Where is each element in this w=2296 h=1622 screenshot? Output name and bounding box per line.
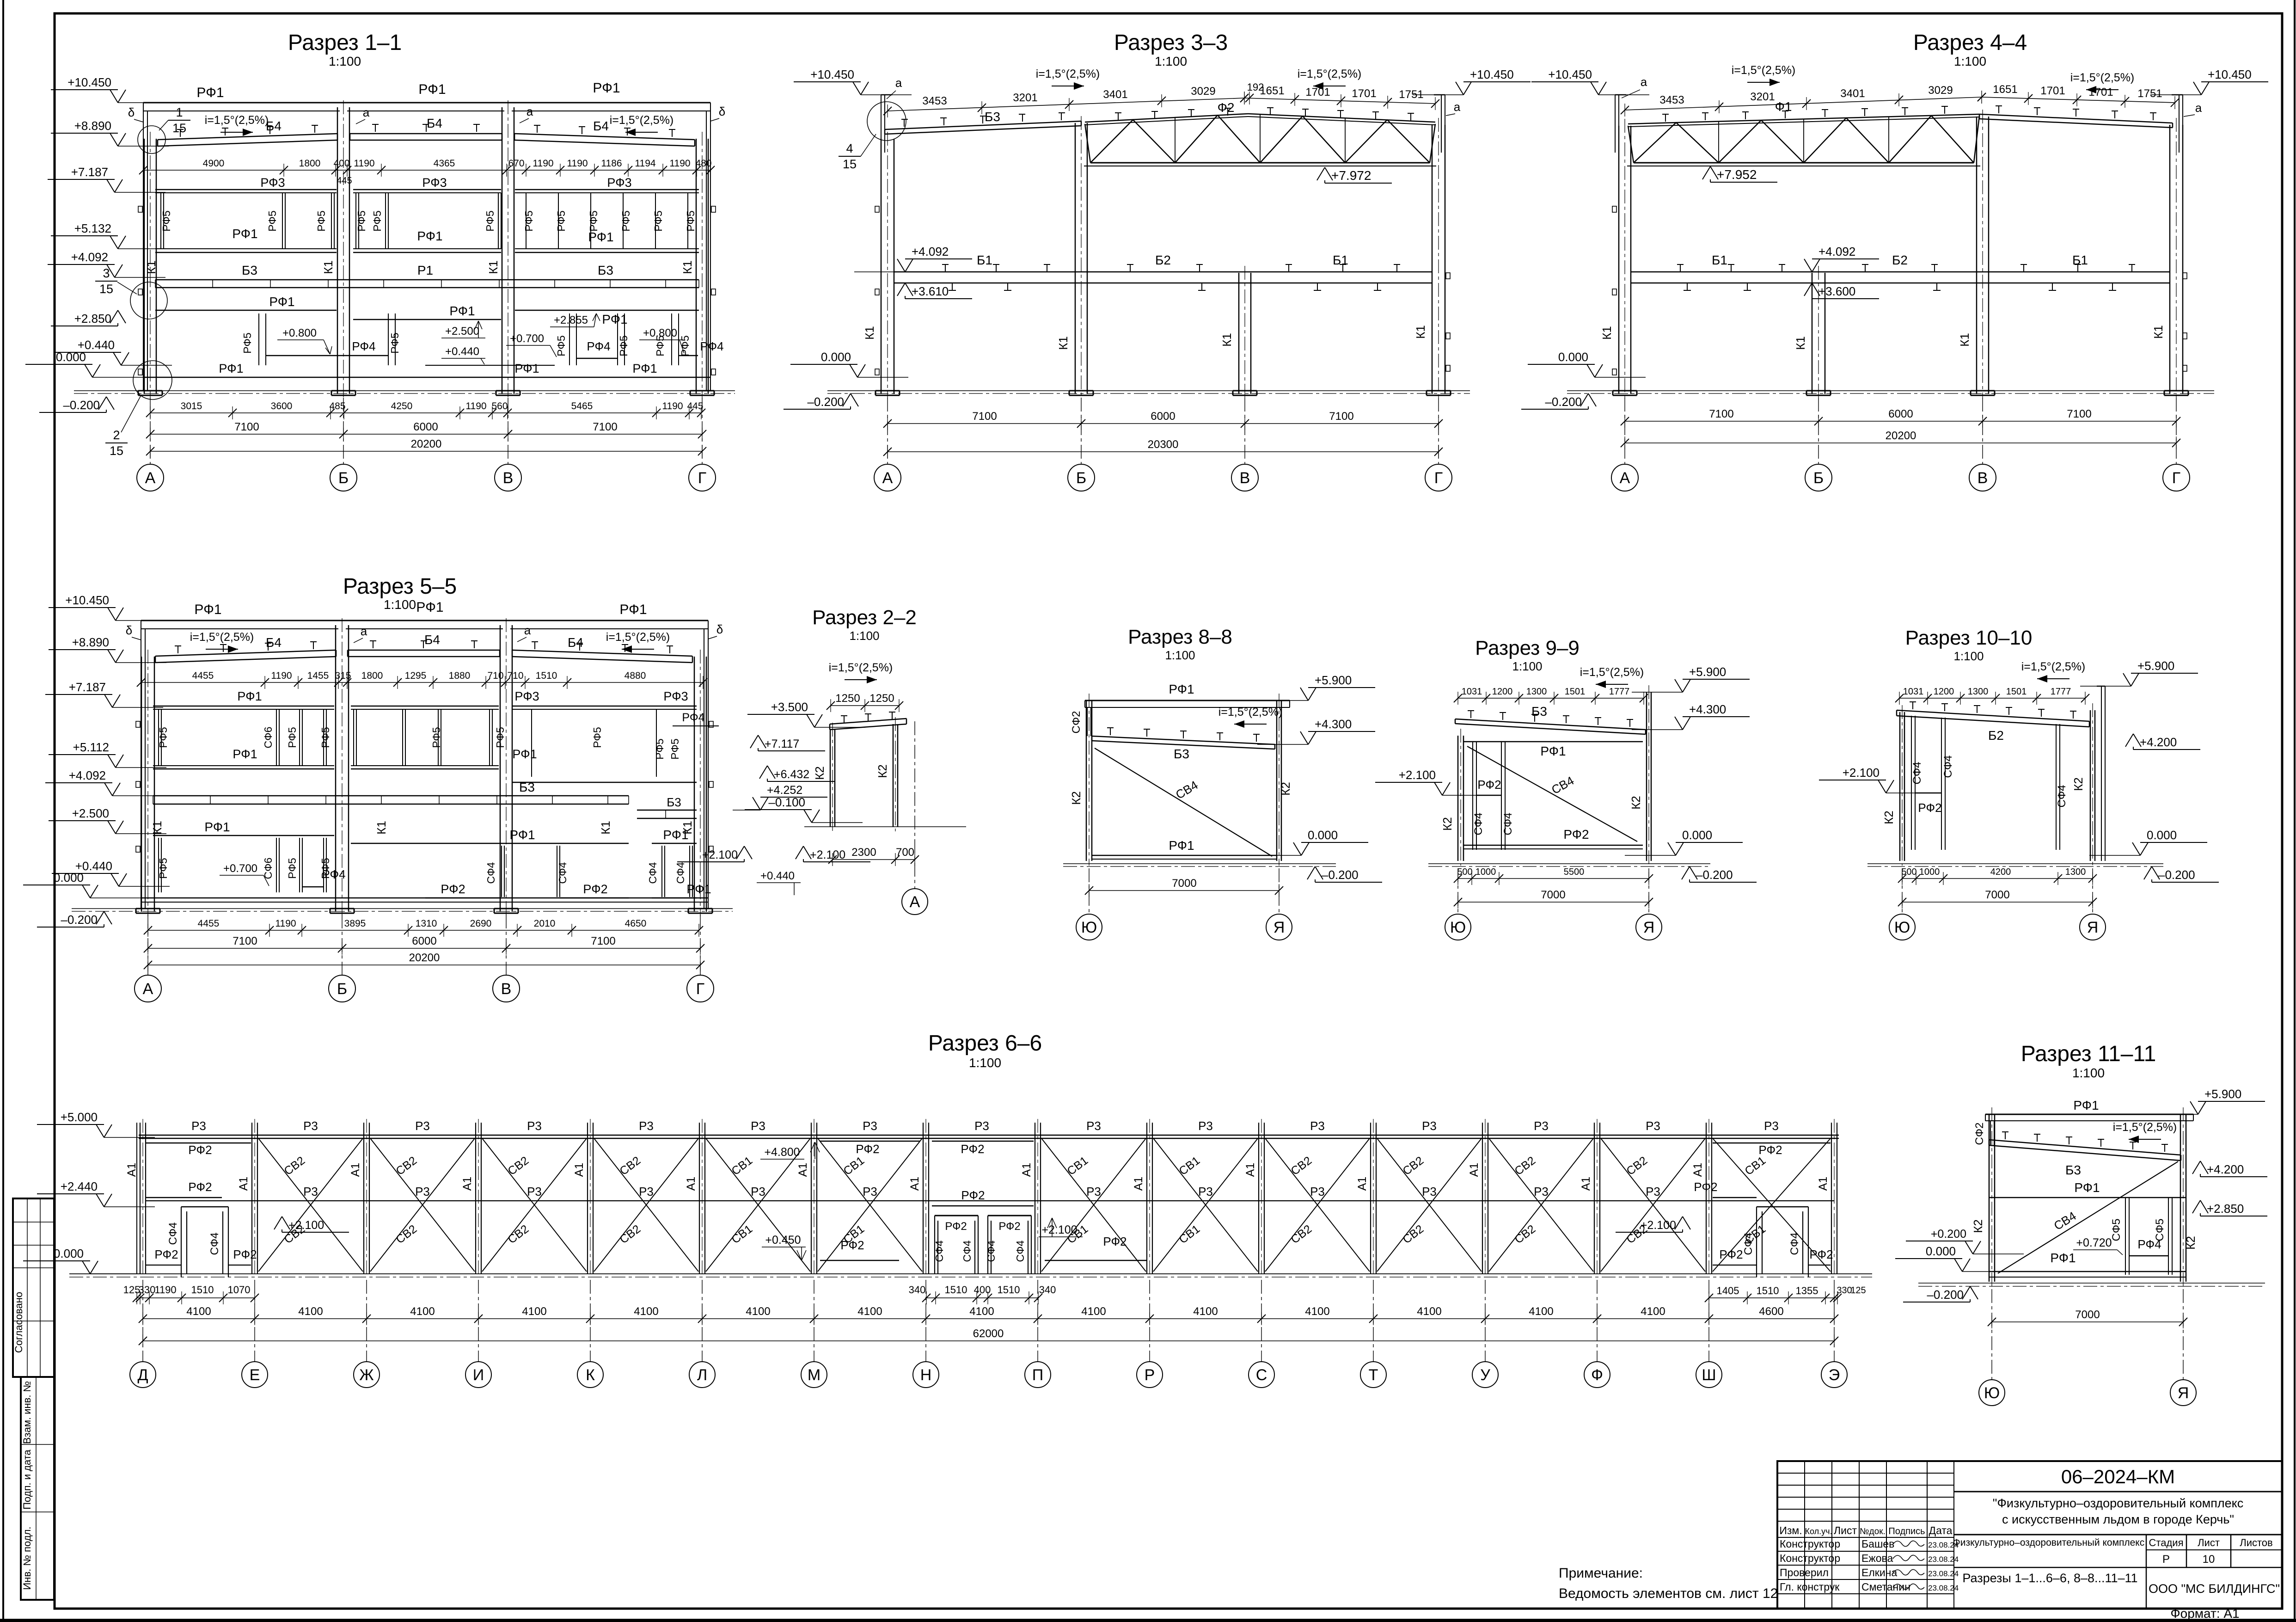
- svg-text:+2.100: +2.100: [288, 1219, 324, 1232]
- svg-text:РФ2: РФ2: [1477, 778, 1501, 792]
- svg-text:+4.252: +4.252: [767, 784, 802, 797]
- svg-text:А1: А1: [685, 1177, 698, 1191]
- svg-text:К1: К1: [1056, 336, 1070, 350]
- svg-text:А1: А1: [349, 1163, 362, 1177]
- svg-text:3201: 3201: [1750, 91, 1775, 103]
- svg-text:Р3: Р3: [191, 1119, 206, 1133]
- svg-text:–0.200: –0.200: [807, 395, 844, 409]
- svg-text:РФ5: РФ5: [286, 858, 298, 879]
- svg-text:125: 125: [123, 1284, 141, 1296]
- svg-text:Физкультурно–оздоровительный к: Физкультурно–оздоровительный комплекс: [1953, 1537, 2144, 1548]
- svg-text:4100: 4100: [746, 1305, 770, 1318]
- svg-text:Разрез 5–5: Разрез 5–5: [343, 574, 457, 599]
- svg-text:а: а: [895, 76, 902, 90]
- svg-text:3600: 3600: [271, 401, 293, 412]
- svg-text:У: У: [1480, 1366, 1490, 1384]
- svg-text:РФ4: РФ4: [352, 339, 375, 353]
- svg-text:а: а: [361, 624, 367, 638]
- svg-text:РФ1: РФ1: [233, 747, 257, 761]
- svg-text:+2.500: +2.500: [445, 325, 479, 338]
- svg-text:РФ5: РФ5: [371, 210, 383, 231]
- svg-text:Р: Р: [1145, 1366, 1155, 1384]
- svg-text:i=1,5°(2,5%): i=1,5°(2,5%): [1218, 706, 1283, 719]
- svg-text:1:100: 1:100: [1155, 54, 1187, 68]
- svg-text:СФ2: СФ2: [1070, 711, 1083, 734]
- svg-text:Б: Б: [338, 469, 349, 487]
- svg-text:6000: 6000: [413, 421, 438, 433]
- svg-text:1:100: 1:100: [1953, 649, 1984, 663]
- svg-text:Сметанин: Сметанин: [1861, 1581, 1910, 1593]
- svg-text:2690: 2690: [470, 918, 492, 929]
- svg-text:РФ5: РФ5: [679, 335, 691, 356]
- svg-text:1300: 1300: [2065, 867, 2086, 877]
- svg-text:Р3: Р3: [639, 1185, 654, 1198]
- svg-text:РФ2: РФ2: [856, 1142, 879, 1156]
- svg-text:РФ4: РФ4: [700, 339, 723, 353]
- svg-text:485: 485: [329, 401, 345, 412]
- svg-text:К1: К1: [1794, 336, 1807, 350]
- svg-text:РФ1: РФ1: [237, 689, 262, 703]
- svg-text:К1: К1: [2151, 325, 2165, 339]
- svg-text:А: А: [145, 469, 156, 487]
- svg-text:23.08.24: 23.08.24: [1928, 1584, 1959, 1592]
- svg-text:–0.200: –0.200: [1927, 1288, 1964, 1302]
- svg-text:4200: 4200: [1990, 867, 2011, 877]
- svg-text:Б4: Б4: [266, 635, 282, 650]
- svg-text:4100: 4100: [634, 1305, 658, 1318]
- svg-text:1200: 1200: [1492, 687, 1513, 697]
- svg-text:+2.100: +2.100: [702, 848, 738, 861]
- svg-text:330: 330: [139, 1284, 156, 1296]
- svg-text:+0.700: +0.700: [223, 862, 257, 875]
- svg-text:СФ4: СФ4: [485, 862, 497, 884]
- svg-text:В: В: [503, 469, 514, 487]
- svg-text:330: 330: [1837, 1285, 1852, 1296]
- svg-text:К1: К1: [1414, 325, 1427, 339]
- svg-text:Ф1: Ф1: [1775, 99, 1792, 114]
- svg-text:1800: 1800: [361, 670, 383, 681]
- svg-text:4100: 4100: [1529, 1305, 1553, 1318]
- svg-text:А1: А1: [125, 1163, 138, 1177]
- svg-text:1751: 1751: [2137, 87, 2162, 100]
- svg-text:К: К: [586, 1366, 595, 1384]
- svg-text:i=1,5°(2,5%): i=1,5°(2,5%): [190, 631, 254, 644]
- svg-text:Б4: Б4: [266, 119, 282, 133]
- svg-text:6000: 6000: [1888, 408, 1913, 420]
- svg-text:i=1,5°(2,5%): i=1,5°(2,5%): [610, 114, 674, 127]
- svg-text:+4.092: +4.092: [1818, 245, 1855, 258]
- svg-text:СФ4: СФ4: [933, 1240, 945, 1262]
- svg-text:РФ2: РФ2: [1918, 801, 1941, 815]
- svg-text:РФ1: РФ1: [1169, 682, 1194, 696]
- svg-text:Р3: Р3: [1422, 1185, 1437, 1198]
- svg-text:23.08.24: 23.08.24: [1928, 1555, 1959, 1564]
- svg-text:3401: 3401: [1840, 87, 1865, 100]
- svg-text:3895: 3895: [344, 918, 366, 929]
- svg-text:Д: Д: [137, 1366, 148, 1384]
- svg-text:1651: 1651: [1993, 83, 2017, 96]
- svg-text:РФ5: РФ5: [157, 727, 169, 748]
- svg-text:К2: К2: [813, 766, 827, 780]
- svg-text:РФ5: РФ5: [620, 210, 632, 231]
- svg-text:Б3: Б3: [1174, 747, 1189, 761]
- svg-text:РФ1: РФ1: [219, 362, 243, 375]
- svg-text:РФ2: РФ2: [583, 882, 607, 896]
- svg-text:К1: К1: [680, 260, 694, 274]
- svg-text:0.000: 0.000: [821, 350, 851, 364]
- svg-text:А: А: [143, 980, 153, 998]
- svg-text:Разрез 9–9: Разрез 9–9: [1475, 637, 1580, 659]
- svg-text:Б3: Б3: [242, 263, 257, 277]
- svg-text:1405: 1405: [1717, 1285, 1739, 1296]
- svg-text:i=1,5°(2,5%): i=1,5°(2,5%): [606, 631, 670, 644]
- svg-text:+5.132: +5.132: [74, 221, 111, 235]
- svg-text:15: 15: [99, 282, 113, 296]
- svg-text:РФ5: РФ5: [241, 332, 253, 353]
- svg-text:+3.610: +3.610: [912, 284, 949, 298]
- svg-text:Ф2: Ф2: [1218, 100, 1235, 115]
- svg-text:Р1: Р1: [417, 263, 433, 277]
- svg-text:Стадия: Стадия: [2149, 1537, 2184, 1548]
- svg-text:Р3: Р3: [303, 1119, 318, 1133]
- svg-text:СФ6: СФ6: [262, 727, 274, 749]
- svg-text:СФ4: СФ4: [167, 1223, 179, 1245]
- svg-text:06–2024–КМ: 06–2024–КМ: [2061, 1466, 2175, 1487]
- svg-text:СФ4: СФ4: [1014, 1240, 1026, 1262]
- svg-text:7000: 7000: [1985, 889, 2009, 901]
- svg-text:+10.450: +10.450: [810, 68, 854, 81]
- svg-text:Р3: Р3: [751, 1119, 765, 1133]
- svg-text:+4.092: +4.092: [912, 245, 949, 258]
- svg-text:1510: 1510: [536, 670, 557, 681]
- svg-text:РФ2: РФ2: [154, 1247, 178, 1261]
- svg-text:Б2: Б2: [1155, 253, 1171, 267]
- svg-text:Разрез 8–8: Разрез 8–8: [1128, 626, 1232, 648]
- svg-text:К2: К2: [1069, 791, 1083, 805]
- svg-text:СФ4: СФ4: [2056, 785, 2068, 808]
- svg-text:РФ3: РФ3: [260, 176, 285, 190]
- svg-text:15: 15: [843, 157, 857, 171]
- svg-text:РФ1: РФ1: [2074, 1180, 2100, 1195]
- svg-text:Р3: Р3: [1086, 1185, 1101, 1198]
- svg-text:Р3: Р3: [639, 1119, 654, 1133]
- svg-text:К1: К1: [599, 821, 612, 835]
- svg-text:А1: А1: [908, 1177, 921, 1191]
- svg-text:7000: 7000: [2075, 1309, 2100, 1321]
- svg-text:+7.972: +7.972: [1331, 168, 1371, 183]
- svg-text:Э: Э: [1829, 1366, 1840, 1384]
- svg-text:Ю: Ю: [1450, 919, 1466, 936]
- svg-text:1190: 1190: [669, 158, 690, 169]
- svg-text:1194: 1194: [635, 158, 655, 169]
- svg-text:+4.200: +4.200: [2140, 735, 2177, 749]
- svg-text:+10.450: +10.450: [67, 75, 111, 89]
- svg-text:–0.200: –0.200: [63, 398, 100, 412]
- svg-text:+0.720: +0.720: [2076, 1236, 2112, 1249]
- svg-text:2010: 2010: [534, 918, 556, 929]
- svg-text:4100: 4100: [1305, 1305, 1329, 1318]
- svg-text:РФ5: РФ5: [430, 727, 442, 748]
- svg-text:1501: 1501: [2006, 687, 2027, 697]
- svg-text:Г: Г: [2172, 469, 2180, 487]
- svg-text:+3.600: +3.600: [1818, 284, 1855, 298]
- svg-text:i=1,5°(2,5%): i=1,5°(2,5%): [829, 661, 893, 674]
- svg-text:"Физкультурно–оздоровительный: "Физкультурно–оздоровительный комплекс: [1993, 1496, 2243, 1510]
- svg-text:+5.000: +5.000: [61, 1110, 98, 1124]
- svg-text:РФ2: РФ2: [1694, 1180, 1717, 1194]
- svg-text:710: 710: [487, 670, 503, 681]
- svg-text:Б4: Б4: [568, 635, 583, 650]
- svg-text:№док.: №док.: [1860, 1527, 1886, 1536]
- svg-text:Ведомость элементов см. лист 1: Ведомость элементов см. лист 12: [1559, 1586, 1778, 1601]
- svg-text:4100: 4100: [186, 1305, 211, 1318]
- svg-text:–0.200: –0.200: [1322, 868, 1359, 882]
- svg-text:РФ2: РФ2: [188, 1180, 212, 1194]
- svg-text:20300: 20300: [1148, 438, 1179, 451]
- svg-text:Взам. инв. №: Взам. инв. №: [21, 1381, 33, 1444]
- svg-text:К1: К1: [1958, 333, 1971, 347]
- svg-text:2300: 2300: [851, 846, 876, 859]
- svg-text:1777: 1777: [1609, 687, 1630, 697]
- svg-text:РФ5: РФ5: [266, 210, 278, 231]
- svg-text:Ю: Ю: [1894, 919, 1910, 936]
- svg-text:Р3: Р3: [1646, 1185, 1660, 1198]
- svg-text:К1: К1: [486, 260, 500, 274]
- svg-text:1190: 1190: [275, 918, 296, 929]
- svg-text:К1: К1: [321, 260, 335, 274]
- svg-text:РФ2: РФ2: [1719, 1247, 1743, 1261]
- svg-text:1701: 1701: [2040, 85, 2065, 97]
- svg-text:РФ1: РФ1: [512, 747, 537, 761]
- svg-text:1310: 1310: [416, 918, 437, 929]
- svg-text:РФ5: РФ5: [286, 727, 298, 748]
- svg-text:4100: 4100: [857, 1305, 882, 1318]
- svg-text:4650: 4650: [625, 918, 647, 929]
- svg-text:i=1,5°(2,5%): i=1,5°(2,5%): [205, 114, 269, 127]
- svg-text:Б4: Б4: [593, 119, 609, 133]
- svg-text:1:100: 1:100: [1954, 54, 1986, 68]
- svg-text:Я: Я: [2087, 919, 2099, 936]
- svg-text:4100: 4100: [1417, 1305, 1441, 1318]
- svg-text:Р3: Р3: [303, 1185, 318, 1198]
- svg-text:7100: 7100: [591, 935, 615, 947]
- svg-text:445: 445: [687, 401, 703, 412]
- svg-text:20200: 20200: [411, 438, 442, 450]
- svg-text:РФ1: РФ1: [416, 600, 443, 615]
- svg-text:+5.900: +5.900: [2137, 659, 2174, 673]
- svg-text:СФ4: СФ4: [647, 862, 659, 884]
- svg-text:+5.900: +5.900: [2204, 1087, 2241, 1101]
- svg-text:δ: δ: [719, 104, 725, 118]
- svg-text:Р3: Р3: [1764, 1119, 1779, 1133]
- svg-text:Н: Н: [920, 1366, 932, 1384]
- svg-text:РФ1: РФ1: [619, 602, 647, 617]
- svg-text:Г: Г: [698, 469, 706, 487]
- svg-text:РФ2: РФ2: [961, 1142, 984, 1156]
- svg-text:А1: А1: [461, 1177, 474, 1191]
- svg-text:+4.300: +4.300: [1315, 717, 1352, 731]
- svg-text:с искусственным льдом в городе: с искусственным льдом в городе Керчь": [2002, 1512, 2234, 1526]
- svg-text:–0.100: –0.100: [768, 795, 805, 809]
- svg-text:1800: 1800: [299, 158, 321, 169]
- svg-text:1250: 1250: [869, 692, 894, 705]
- svg-text:Р3: Р3: [751, 1185, 765, 1198]
- svg-text:РФ2: РФ2: [998, 1220, 1020, 1233]
- svg-text:1:100: 1:100: [1512, 659, 1542, 673]
- svg-text:15: 15: [172, 121, 186, 135]
- svg-text:125: 125: [1850, 1285, 1866, 1296]
- svg-text:+7.187: +7.187: [71, 165, 108, 179]
- svg-text:+0.700: +0.700: [510, 332, 544, 345]
- svg-text:i=1,5°(2,5%): i=1,5°(2,5%): [1580, 666, 1644, 679]
- svg-text:Разрез 6–6: Разрез 6–6: [928, 1031, 1042, 1056]
- svg-text:Р3: Р3: [1646, 1119, 1660, 1133]
- svg-text:7100: 7100: [233, 935, 257, 947]
- svg-text:1190: 1190: [154, 1284, 176, 1296]
- svg-text:Ю: Ю: [1081, 919, 1097, 936]
- svg-text:а: а: [1454, 100, 1461, 114]
- svg-text:+8.890: +8.890: [74, 119, 111, 133]
- svg-text:К2: К2: [2184, 1236, 2198, 1250]
- svg-text:+0.800: +0.800: [282, 327, 317, 339]
- svg-text:а: а: [524, 623, 531, 637]
- svg-text:+10.450: +10.450: [65, 593, 109, 607]
- svg-text:К2: К2: [1882, 811, 1896, 824]
- svg-text:+4.092: +4.092: [69, 768, 106, 782]
- svg-text:–0.200: –0.200: [61, 913, 98, 927]
- svg-text:А1: А1: [1817, 1177, 1830, 1191]
- svg-text:Р3: Р3: [415, 1119, 430, 1133]
- svg-text:+4.800: +4.800: [764, 1146, 800, 1159]
- svg-text:Б2: Б2: [1892, 253, 1908, 267]
- svg-text:а: а: [1641, 75, 1647, 89]
- svg-text:Г: Г: [1434, 469, 1443, 487]
- svg-text:А1: А1: [1356, 1177, 1369, 1191]
- svg-text:480: 480: [695, 158, 711, 169]
- svg-text:Листов: Листов: [2240, 1537, 2272, 1548]
- svg-text:РФ2: РФ2: [840, 1238, 864, 1252]
- svg-text:+7.952: +7.952: [1717, 167, 1757, 182]
- svg-text:РФ1: РФ1: [449, 304, 475, 318]
- svg-text:А1: А1: [1244, 1163, 1257, 1177]
- svg-text:Р3: Р3: [415, 1185, 430, 1198]
- svg-text:+0.440: +0.440: [760, 870, 795, 882]
- svg-text:6000: 6000: [412, 935, 436, 947]
- svg-text:1501: 1501: [1565, 687, 1586, 697]
- svg-text:7100: 7100: [972, 410, 997, 423]
- svg-text:1701: 1701: [1352, 87, 1376, 100]
- svg-text:К1: К1: [1600, 326, 1614, 340]
- svg-text:А: А: [910, 893, 920, 911]
- svg-text:РФ5: РФ5: [157, 858, 169, 879]
- svg-text:Ф: Ф: [1591, 1366, 1603, 1384]
- svg-text:РФ4: РФ4: [587, 339, 610, 353]
- svg-text:Б1: Б1: [2072, 253, 2088, 267]
- svg-text:+10.450: +10.450: [1470, 68, 1514, 81]
- svg-text:СФ4: СФ4: [1472, 813, 1485, 836]
- svg-text:А1: А1: [1020, 1163, 1033, 1177]
- svg-text:К2: К2: [2071, 777, 2085, 791]
- svg-text:РФ2: РФ2: [188, 1143, 212, 1157]
- svg-text:Р3: Р3: [1534, 1119, 1549, 1133]
- svg-text:Разрез 2–2: Разрез 2–2: [812, 606, 917, 629]
- svg-text:Р3: Р3: [1310, 1185, 1325, 1198]
- svg-text:СФ4: СФ4: [1942, 756, 1954, 778]
- svg-text:Разрез 4–4: Разрез 4–4: [1913, 31, 2027, 55]
- svg-text:Примечание:: Примечание:: [1559, 1566, 1643, 1581]
- svg-text:1:100: 1:100: [1165, 648, 1195, 662]
- svg-text:К2: К2: [1279, 782, 1292, 796]
- svg-text:РФ5: РФ5: [389, 332, 401, 353]
- svg-text:СФ5: СФ5: [2110, 1219, 2123, 1241]
- svg-text:1455: 1455: [307, 670, 329, 681]
- svg-text:Ю: Ю: [1984, 1384, 2000, 1402]
- svg-text:7100: 7100: [593, 421, 617, 433]
- svg-text:РФ5: РФ5: [685, 210, 697, 231]
- svg-text:Башев: Башев: [1861, 1538, 1894, 1550]
- svg-text:Т: Т: [1369, 1366, 1378, 1384]
- svg-text:СФ4: СФ4: [674, 862, 686, 884]
- svg-text:1190: 1190: [271, 670, 292, 681]
- svg-text:Р: Р: [2162, 1553, 2170, 1566]
- svg-text:1880: 1880: [449, 670, 471, 681]
- svg-text:РФ2: РФ2: [1758, 1143, 1782, 1157]
- svg-text:1070: 1070: [228, 1284, 251, 1296]
- svg-text:РФ5: РФ5: [160, 210, 172, 231]
- svg-text:РФ3: РФ3: [422, 176, 447, 190]
- svg-text:20200: 20200: [409, 952, 440, 964]
- svg-text:РФ1: РФ1: [194, 602, 221, 617]
- svg-text:Л: Л: [697, 1366, 707, 1384]
- svg-text:РФ5: РФ5: [652, 210, 664, 231]
- svg-text:Я: Я: [1643, 919, 1655, 936]
- svg-text:1000: 1000: [1919, 867, 1940, 877]
- svg-text:1:100: 1:100: [849, 629, 879, 643]
- svg-text:7100: 7100: [1709, 408, 1733, 420]
- svg-text:i=1,5°(2,5%): i=1,5°(2,5%): [2113, 1121, 2177, 1134]
- svg-text:В: В: [501, 980, 512, 998]
- svg-text:7000: 7000: [1172, 877, 1196, 890]
- svg-text:Р3: Р3: [527, 1119, 542, 1133]
- svg-text:+3.500: +3.500: [771, 700, 808, 714]
- svg-text:1186: 1186: [601, 158, 622, 169]
- svg-text:4100: 4100: [969, 1305, 994, 1318]
- svg-text:РФ5: РФ5: [315, 210, 327, 231]
- svg-text:0.000: 0.000: [54, 871, 84, 885]
- svg-text:РФ5: РФ5: [523, 210, 535, 231]
- svg-text:РФ1: РФ1: [417, 229, 442, 243]
- svg-text:4100: 4100: [410, 1305, 435, 1318]
- svg-text:+0.440: +0.440: [445, 345, 479, 358]
- svg-text:1190: 1190: [533, 158, 553, 169]
- svg-text:4100: 4100: [522, 1305, 546, 1318]
- svg-text:Я: Я: [1274, 919, 1285, 936]
- svg-text:1: 1: [176, 105, 183, 119]
- svg-text:4455: 4455: [192, 670, 214, 681]
- svg-text:0.000: 0.000: [54, 1247, 84, 1260]
- svg-text:1190: 1190: [662, 401, 683, 412]
- svg-text:К2: К2: [1440, 817, 1454, 831]
- svg-text:340: 340: [909, 1284, 926, 1296]
- svg-text:4900: 4900: [203, 158, 225, 169]
- svg-text:М: М: [808, 1366, 820, 1384]
- svg-text:+6.432: +6.432: [774, 768, 809, 781]
- svg-text:560: 560: [491, 401, 508, 412]
- svg-text:1355: 1355: [1796, 1285, 1818, 1296]
- svg-text:а: а: [2195, 101, 2202, 115]
- svg-text:i=1,5°(2,5%): i=1,5°(2,5%): [2070, 71, 2135, 84]
- svg-text:РФ1: РФ1: [2073, 1098, 2099, 1112]
